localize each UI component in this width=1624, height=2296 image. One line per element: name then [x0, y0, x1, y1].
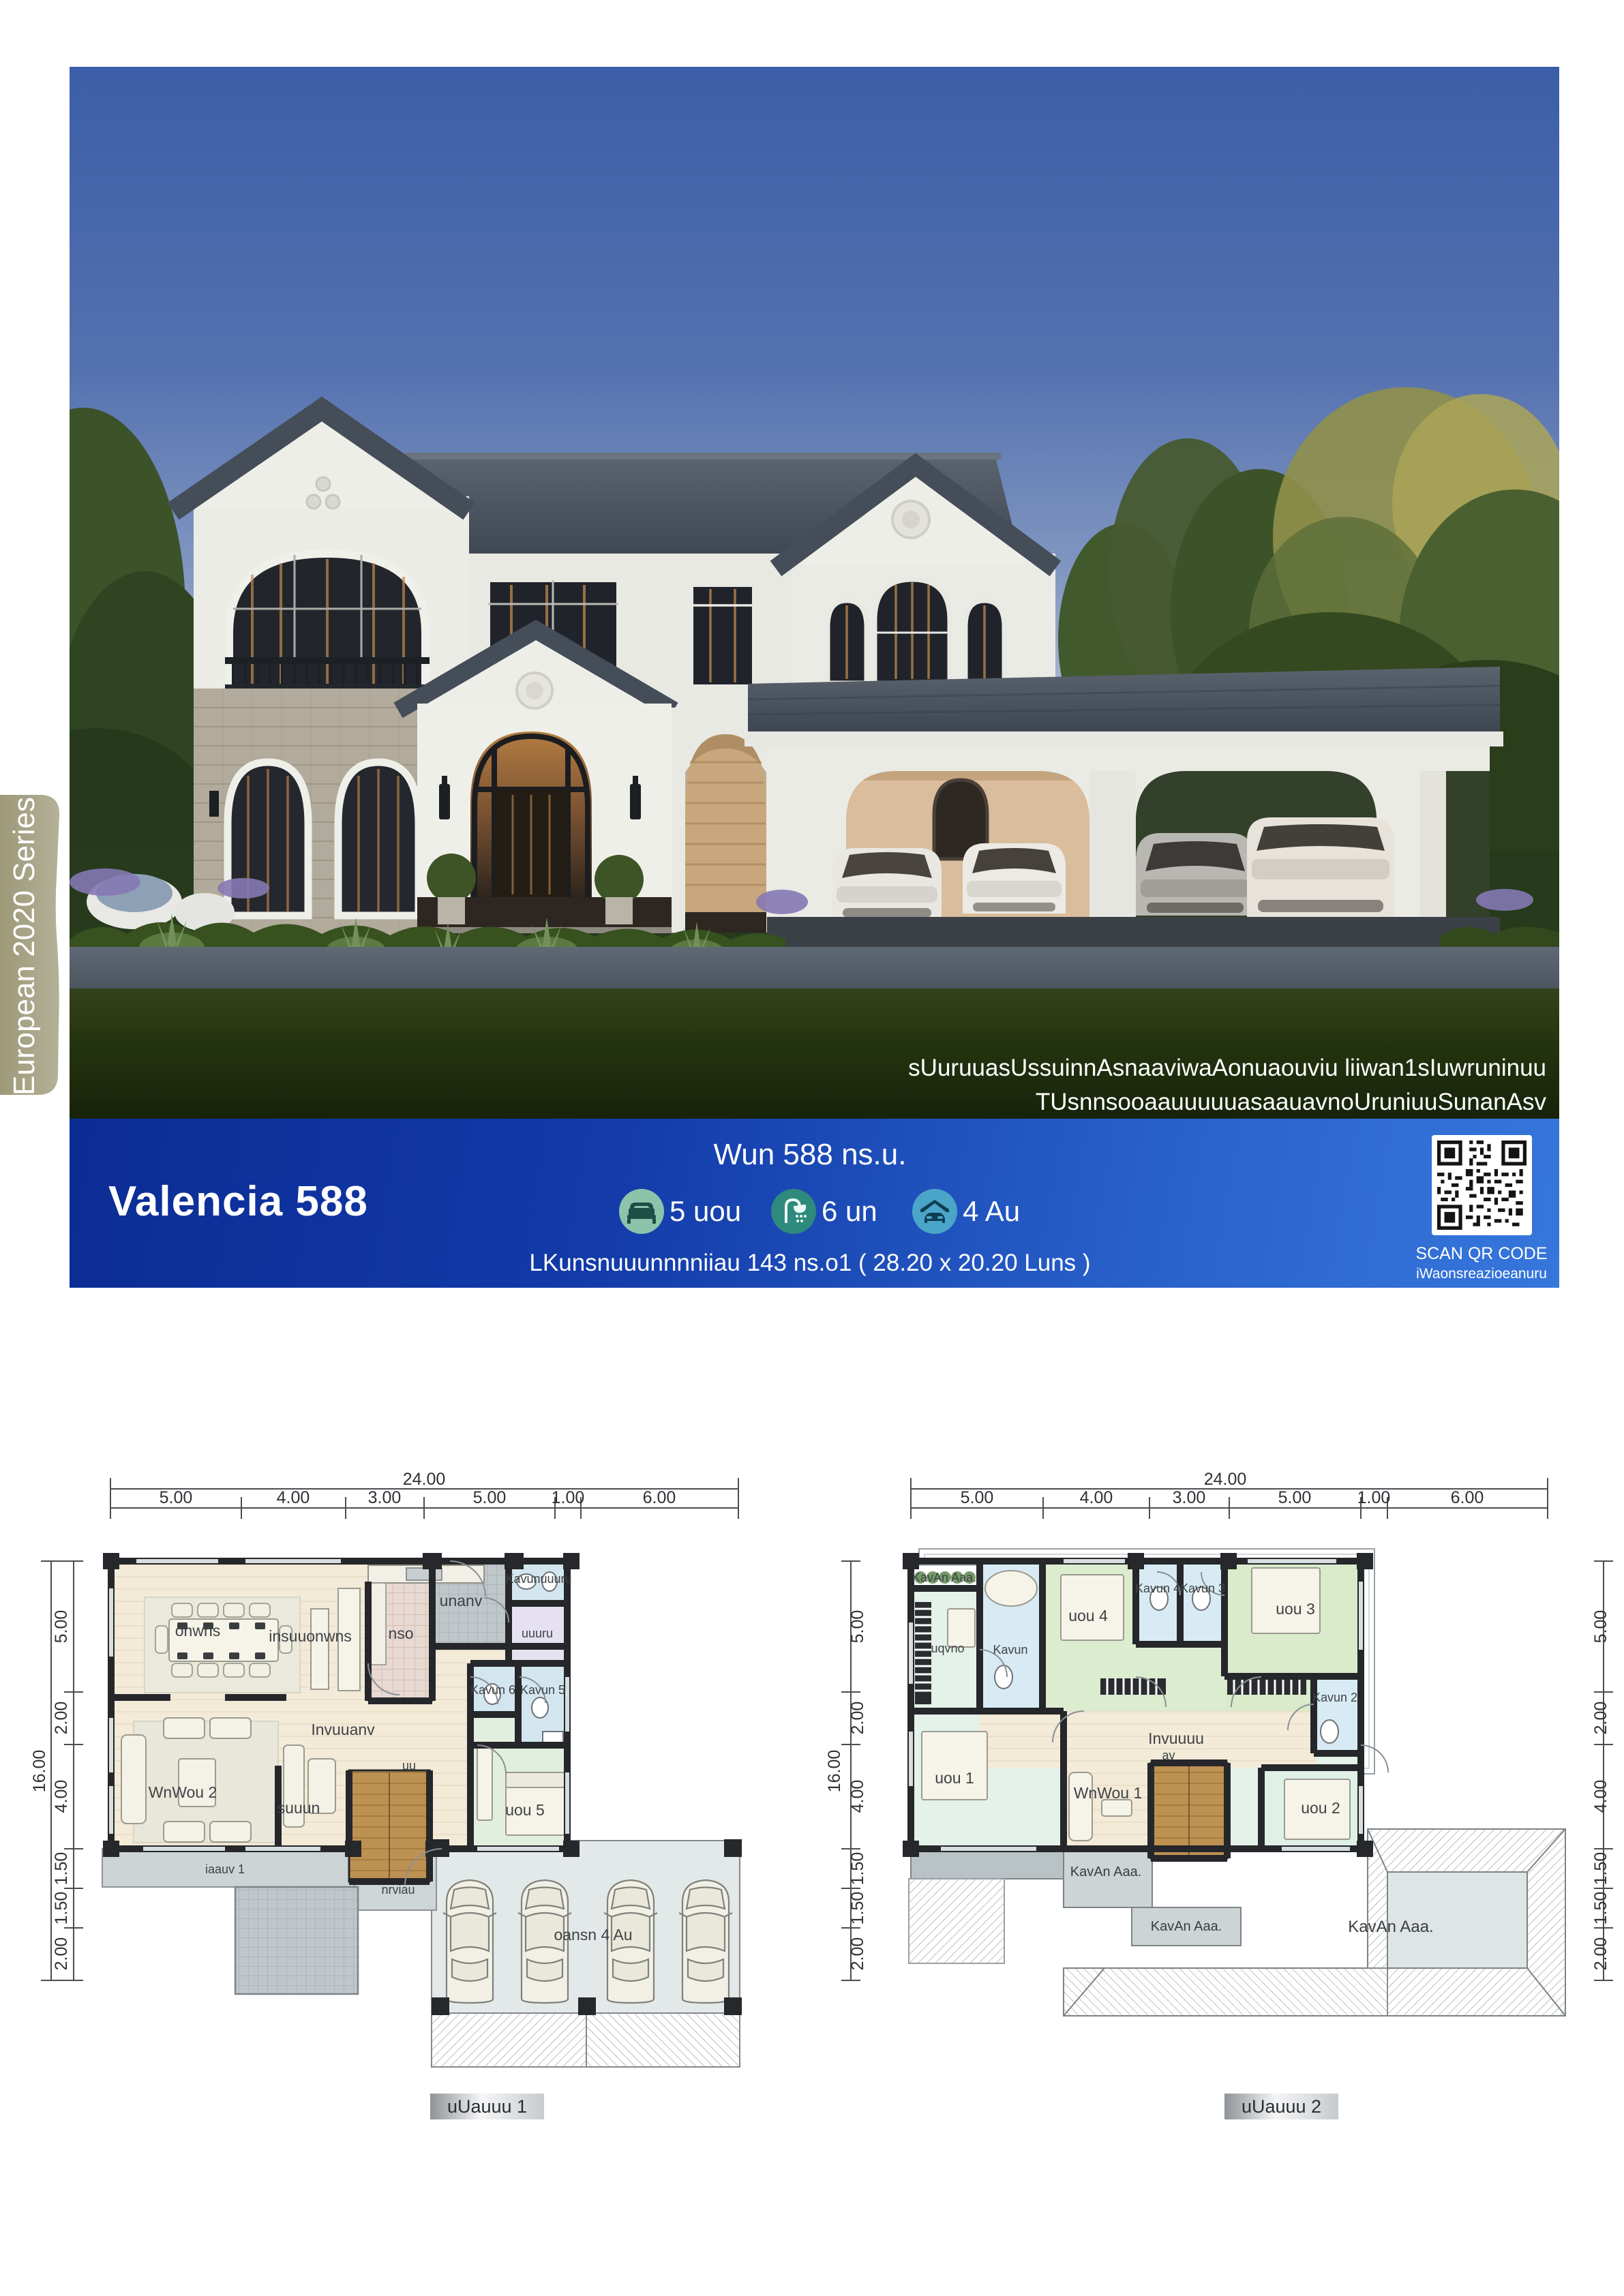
svg-text:KavAn Aaa.: KavAn Aaa.	[1348, 1918, 1433, 1936]
svg-text:16.00: 16.00	[825, 1750, 844, 1793]
svg-text:1.50: 1.50	[52, 1892, 71, 1925]
svg-text:1.50: 1.50	[848, 1892, 867, 1925]
svg-text:2.00: 2.00	[848, 1937, 867, 1971]
svg-text:2.00: 2.00	[848, 1702, 867, 1735]
svg-text:4.00: 4.00	[277, 1488, 310, 1507]
svg-text:3.00: 3.00	[368, 1488, 402, 1507]
svg-text:uuuru: uuuru	[522, 1627, 553, 1640]
svg-text:unanv: unanv	[440, 1592, 483, 1610]
svg-text:Kavun 5: Kavun 5	[520, 1683, 565, 1697]
svg-text:6.00: 6.00	[643, 1488, 676, 1507]
svg-text:Kavun 2: Kavun 2	[1312, 1691, 1357, 1704]
svg-text:2.00: 2.00	[52, 1937, 71, 1971]
svg-text:WnWou 1: WnWou 1	[1074, 1784, 1143, 1802]
svg-text:4.00: 4.00	[848, 1780, 867, 1813]
svg-text:Kavunuuuru: Kavunuuuru	[505, 1572, 571, 1586]
svg-text:uou 3: uou 3	[1276, 1600, 1315, 1618]
svg-text:oansn 4 Au: oansn 4 Au	[554, 1926, 632, 1944]
svg-text:onwns: onwns	[175, 1622, 220, 1640]
svg-text:insuuonwns: insuuonwns	[269, 1627, 351, 1645]
svg-text:5.00: 5.00	[1591, 1610, 1610, 1644]
svg-text:1.00: 1.00	[1357, 1488, 1391, 1507]
svg-text:WnWou 2: WnWou 2	[149, 1783, 217, 1801]
svg-text:av: av	[1162, 1749, 1175, 1762]
svg-text:16.00: 16.00	[30, 1750, 49, 1793]
svg-text:uu: uu	[402, 1759, 416, 1772]
svg-text:5.00: 5.00	[961, 1488, 994, 1507]
svg-text:5.00: 5.00	[1278, 1488, 1312, 1507]
svg-text:4.00: 4.00	[52, 1780, 71, 1813]
svg-text:uou 1: uou 1	[935, 1769, 974, 1787]
svg-text:5.00: 5.00	[52, 1610, 71, 1644]
svg-text:2.00: 2.00	[52, 1702, 71, 1735]
svg-text:Kavun 3: Kavun 3	[1180, 1582, 1225, 1595]
svg-text:uou 4: uou 4	[1068, 1607, 1108, 1625]
svg-text:KavAn Aaa.: KavAn Aaa.	[1151, 1919, 1222, 1934]
svg-text:KavAn Aaa.: KavAn Aaa.	[1070, 1864, 1142, 1879]
svg-text:4.00: 4.00	[1080, 1488, 1113, 1507]
svg-text:3.00: 3.00	[1173, 1488, 1206, 1507]
svg-text:6.00: 6.00	[1451, 1488, 1484, 1507]
svg-text:nso: nso	[388, 1625, 413, 1642]
svg-text:uqvno: uqvno	[931, 1642, 964, 1655]
svg-text:1.50: 1.50	[1591, 1892, 1610, 1925]
svg-text:Kavun: Kavun	[993, 1643, 1027, 1657]
svg-text:uou 2: uou 2	[1301, 1799, 1340, 1817]
svg-text:24.00: 24.00	[1204, 1470, 1247, 1489]
svg-text:KavAn Aaa.: KavAn Aaa.	[912, 1571, 976, 1584]
svg-text:1.50: 1.50	[52, 1852, 71, 1886]
svg-text:2.00: 2.00	[1591, 1937, 1610, 1971]
svg-text:Kavun 4: Kavun 4	[1135, 1582, 1180, 1595]
svg-text:24.00: 24.00	[403, 1470, 446, 1489]
svg-text:Invuuanv: Invuuanv	[311, 1721, 375, 1738]
svg-text:iaauv 1: iaauv 1	[205, 1862, 245, 1876]
svg-text:4.00: 4.00	[1591, 1780, 1610, 1813]
svg-text:nrviau: nrviau	[381, 1883, 415, 1897]
svg-text:1.50: 1.50	[1591, 1852, 1610, 1886]
svg-text:uou 5: uou 5	[505, 1801, 545, 1819]
svg-text:Invuuuu: Invuuuu	[1148, 1729, 1204, 1747]
svg-text:2.00: 2.00	[1591, 1702, 1610, 1735]
svg-text:1.50: 1.50	[848, 1852, 867, 1886]
svg-text:5.00: 5.00	[160, 1488, 193, 1507]
svg-text:5.00: 5.00	[473, 1488, 507, 1507]
svg-text:1.00: 1.00	[552, 1488, 585, 1507]
svg-text:5.00: 5.00	[848, 1610, 867, 1644]
svg-text:Kavun 6: Kavun 6	[470, 1683, 515, 1697]
svg-text:suuun: suuun	[277, 1799, 320, 1817]
